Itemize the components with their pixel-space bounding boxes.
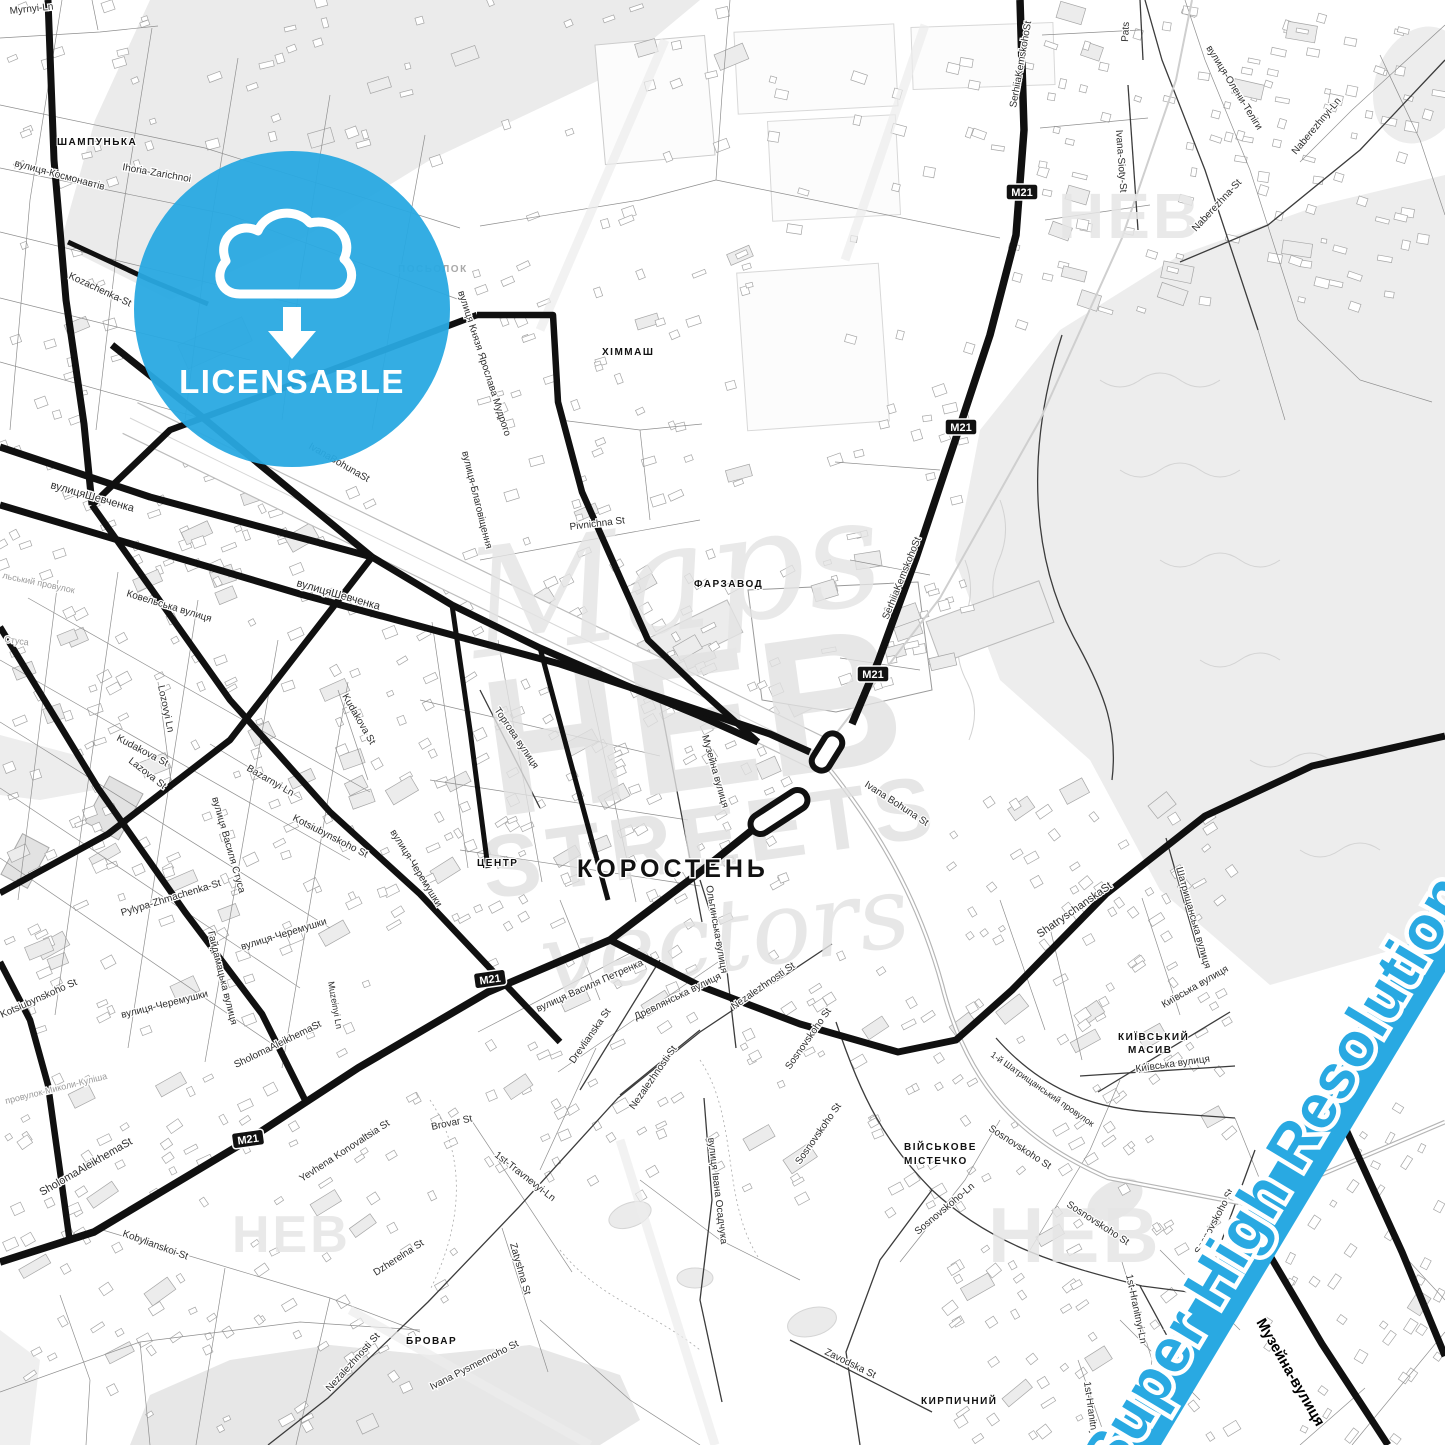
building bbox=[346, 486, 360, 499]
building bbox=[1199, 296, 1211, 305]
building bbox=[336, 717, 344, 726]
building bbox=[950, 495, 962, 505]
building bbox=[1390, 1433, 1401, 1444]
building bbox=[367, 1192, 380, 1205]
building bbox=[167, 852, 181, 862]
building bbox=[1056, 1, 1086, 24]
building bbox=[47, 1353, 57, 1361]
building bbox=[405, 63, 411, 70]
building bbox=[1029, 1431, 1038, 1440]
building bbox=[1053, 126, 1060, 133]
building bbox=[281, 850, 292, 859]
building bbox=[686, 315, 701, 327]
building bbox=[251, 748, 262, 760]
building bbox=[319, 1177, 333, 1188]
building bbox=[1224, 132, 1233, 142]
building bbox=[606, 1132, 616, 1142]
building bbox=[921, 1010, 935, 1022]
street-label: Dzherelna St bbox=[372, 1238, 427, 1279]
building bbox=[777, 1080, 785, 1088]
building bbox=[1070, 886, 1079, 895]
building bbox=[103, 318, 117, 331]
building bbox=[63, 606, 76, 618]
building bbox=[44, 1197, 55, 1208]
building bbox=[426, 843, 440, 853]
building bbox=[1334, 172, 1344, 182]
building bbox=[550, 1051, 562, 1059]
building bbox=[337, 1048, 348, 1057]
building bbox=[1016, 1166, 1025, 1175]
building bbox=[725, 464, 752, 482]
building bbox=[1017, 1290, 1026, 1300]
building bbox=[1306, 48, 1319, 58]
building bbox=[1328, 1274, 1342, 1290]
licensable-badge[interactable]: LICENSABLE bbox=[134, 151, 450, 467]
building bbox=[1420, 1258, 1431, 1270]
building bbox=[34, 396, 48, 409]
building bbox=[934, 1053, 945, 1064]
m21-shield-label: M21 bbox=[1011, 187, 1032, 199]
building bbox=[115, 1160, 125, 1170]
building bbox=[935, 1082, 944, 1091]
building bbox=[428, 1190, 437, 1200]
building bbox=[656, 1121, 667, 1129]
district-label: ШАМПУНЬКА bbox=[57, 137, 137, 148]
building bbox=[1401, 1156, 1413, 1170]
building bbox=[503, 921, 512, 931]
street-label: Sosnovskoho St bbox=[986, 1123, 1053, 1172]
district-label: БРОВАР bbox=[406, 1336, 457, 1347]
building bbox=[386, 1150, 398, 1160]
building bbox=[1060, 1304, 1071, 1314]
building bbox=[349, 1214, 376, 1238]
building bbox=[1039, 161, 1048, 168]
building bbox=[89, 685, 97, 693]
street-label: 1-й Шатрищанський провулок bbox=[989, 1049, 1096, 1128]
building bbox=[713, 138, 730, 152]
building bbox=[237, 1099, 253, 1112]
building bbox=[419, 738, 432, 749]
building bbox=[10, 1202, 24, 1216]
building bbox=[7, 54, 18, 62]
building bbox=[1337, 1315, 1347, 1325]
building bbox=[112, 1242, 123, 1253]
building bbox=[1417, 233, 1430, 244]
building bbox=[528, 1042, 538, 1051]
building bbox=[1216, 988, 1228, 998]
building bbox=[343, 1022, 355, 1034]
building bbox=[1042, 273, 1053, 281]
building bbox=[1076, 1300, 1089, 1311]
building bbox=[960, 1115, 970, 1126]
building bbox=[1222, 1126, 1237, 1140]
building bbox=[214, 655, 227, 666]
building bbox=[1146, 1136, 1154, 1143]
building bbox=[91, 1322, 105, 1333]
building bbox=[953, 1074, 964, 1084]
building bbox=[658, 1097, 669, 1106]
building bbox=[21, 1232, 36, 1246]
building bbox=[1127, 907, 1139, 919]
building bbox=[1360, 1131, 1368, 1139]
building bbox=[10, 334, 22, 345]
building bbox=[1209, 1002, 1218, 1011]
building bbox=[1108, 907, 1117, 917]
building bbox=[1061, 266, 1087, 282]
building bbox=[1079, 85, 1087, 93]
building bbox=[1053, 974, 1068, 986]
building bbox=[600, 219, 610, 229]
building bbox=[998, 925, 1005, 932]
m21-shield: M21 bbox=[473, 969, 507, 989]
building bbox=[983, 796, 995, 808]
watermark-corner-heb: HEB bbox=[1058, 180, 1202, 252]
building bbox=[740, 1043, 748, 1051]
building bbox=[1264, 80, 1273, 88]
building bbox=[1103, 1121, 1115, 1133]
building bbox=[73, 900, 88, 910]
building bbox=[588, 1079, 598, 1087]
building bbox=[504, 1074, 533, 1100]
building bbox=[968, 80, 980, 90]
building bbox=[911, 429, 923, 441]
building bbox=[101, 955, 117, 969]
building bbox=[964, 342, 975, 354]
building bbox=[942, 1300, 958, 1316]
building bbox=[107, 1384, 119, 1396]
map-preview: Maps HEB STREETS vectors HEBHEBHEB bbox=[0, 0, 1445, 1445]
building bbox=[242, 1013, 257, 1026]
building bbox=[1416, 1324, 1428, 1336]
building bbox=[99, 1282, 113, 1296]
building bbox=[1082, 934, 1094, 946]
building bbox=[25, 938, 54, 960]
building bbox=[646, 1165, 659, 1177]
building bbox=[171, 636, 179, 644]
building bbox=[9, 529, 20, 540]
building bbox=[742, 1184, 752, 1192]
building bbox=[769, 76, 777, 83]
building bbox=[968, 907, 977, 917]
building bbox=[101, 0, 115, 13]
building bbox=[355, 1154, 365, 1163]
building bbox=[1404, 1318, 1419, 1334]
building bbox=[1344, 1244, 1357, 1258]
building bbox=[20, 241, 28, 249]
building bbox=[1309, 1276, 1320, 1287]
building bbox=[423, 672, 438, 683]
building bbox=[380, 847, 389, 855]
building bbox=[901, 1019, 916, 1030]
building bbox=[485, 1039, 496, 1051]
building bbox=[1026, 1353, 1038, 1365]
building bbox=[1384, 291, 1394, 298]
building bbox=[1089, 812, 1099, 822]
building bbox=[818, 1051, 825, 1057]
building bbox=[220, 873, 229, 884]
building bbox=[1101, 112, 1111, 122]
building bbox=[1395, 66, 1405, 76]
building bbox=[434, 812, 444, 823]
building bbox=[1267, 69, 1278, 77]
building bbox=[363, 499, 376, 509]
building bbox=[146, 1345, 156, 1356]
building bbox=[1106, 983, 1114, 992]
building bbox=[445, 771, 471, 792]
building bbox=[1198, 72, 1210, 81]
building bbox=[972, 1433, 984, 1443]
building bbox=[862, 1016, 889, 1040]
building bbox=[1084, 1152, 1098, 1165]
building bbox=[1308, 1215, 1321, 1229]
district-label: КИРПИЧНИЙ bbox=[921, 1394, 997, 1407]
building bbox=[537, 1050, 551, 1060]
building bbox=[637, 1127, 647, 1135]
building bbox=[274, 1196, 283, 1204]
street-label: льський провулок bbox=[2, 570, 76, 595]
building bbox=[31, 1347, 42, 1356]
map-canvas: Maps HEB STREETS vectors HEBHEBHEB bbox=[0, 0, 1445, 1445]
building bbox=[592, 448, 603, 457]
building bbox=[434, 1279, 448, 1291]
building bbox=[1365, 111, 1373, 119]
building bbox=[1188, 1400, 1199, 1412]
building bbox=[1149, 1074, 1160, 1085]
building bbox=[1060, 1363, 1068, 1371]
m21-shield: M21 bbox=[857, 666, 889, 682]
building bbox=[1010, 849, 1023, 860]
building bbox=[118, 713, 129, 721]
building bbox=[1118, 840, 1129, 850]
building bbox=[1041, 1397, 1056, 1408]
building bbox=[199, 1197, 208, 1207]
building bbox=[218, 904, 240, 922]
m21-shield-label: M21 bbox=[950, 422, 971, 434]
building bbox=[1418, 1144, 1426, 1154]
building bbox=[960, 57, 974, 67]
building bbox=[1053, 1123, 1069, 1136]
building bbox=[441, 1296, 449, 1303]
building bbox=[986, 882, 996, 892]
building bbox=[115, 632, 127, 643]
building bbox=[1371, 1161, 1381, 1170]
building bbox=[950, 831, 958, 839]
building bbox=[906, 997, 918, 1009]
building bbox=[254, 1263, 269, 1277]
building bbox=[475, 284, 488, 295]
building bbox=[1321, 238, 1327, 243]
building bbox=[1317, 13, 1327, 23]
building bbox=[1102, 1135, 1116, 1147]
street-label: Yevhena Konovaltsia St bbox=[298, 1118, 392, 1185]
building bbox=[529, 455, 545, 466]
building bbox=[87, 1181, 119, 1208]
building bbox=[1347, 1180, 1359, 1193]
building bbox=[94, 737, 107, 746]
building bbox=[743, 1125, 775, 1151]
building bbox=[20, 129, 31, 138]
building bbox=[522, 334, 536, 343]
building bbox=[160, 1138, 172, 1150]
m21-shield: M21 bbox=[231, 1129, 265, 1149]
building bbox=[167, 1119, 183, 1134]
building bbox=[0, 539, 8, 550]
building bbox=[1072, 172, 1087, 180]
building bbox=[504, 489, 519, 502]
building bbox=[97, 999, 108, 1007]
building bbox=[1313, 176, 1323, 184]
building bbox=[222, 1326, 234, 1338]
building bbox=[610, 1039, 625, 1049]
building bbox=[1011, 1309, 1020, 1319]
building bbox=[197, 681, 205, 691]
building bbox=[932, 384, 947, 397]
district-label: ЦЕНТР bbox=[477, 858, 518, 869]
trails bbox=[430, 1060, 760, 1350]
building bbox=[202, 812, 212, 821]
building bbox=[1272, 139, 1281, 148]
building bbox=[692, 269, 706, 278]
building bbox=[1351, 133, 1357, 139]
building bbox=[1211, 110, 1221, 119]
building bbox=[1042, 189, 1052, 196]
building bbox=[159, 915, 175, 926]
building bbox=[781, 1001, 797, 1016]
building bbox=[258, 504, 266, 514]
building bbox=[136, 1333, 152, 1348]
building bbox=[947, 862, 957, 871]
building bbox=[1318, 1386, 1328, 1396]
building bbox=[593, 287, 602, 298]
building bbox=[982, 1173, 991, 1182]
building bbox=[1015, 320, 1027, 331]
building bbox=[1186, 142, 1194, 150]
building bbox=[1030, 875, 1043, 888]
building bbox=[234, 525, 242, 532]
building bbox=[1346, 85, 1358, 97]
building bbox=[1433, 1288, 1445, 1302]
building bbox=[1078, 876, 1093, 890]
building bbox=[993, 935, 1004, 945]
building bbox=[1047, 93, 1055, 101]
building bbox=[684, 455, 693, 463]
building bbox=[516, 261, 530, 271]
building bbox=[1257, 171, 1269, 182]
building bbox=[459, 801, 470, 812]
building bbox=[657, 1020, 672, 1033]
building bbox=[987, 1413, 1000, 1426]
building bbox=[1434, 1200, 1445, 1212]
building bbox=[1057, 1034, 1068, 1045]
street-label: Sosnovskoho St bbox=[793, 1101, 844, 1167]
building bbox=[21, 1115, 30, 1123]
building bbox=[558, 1129, 572, 1141]
building bbox=[1048, 829, 1060, 841]
building bbox=[4, 936, 15, 944]
building bbox=[636, 269, 646, 280]
street-label: Kozachenka-St bbox=[67, 271, 133, 310]
building bbox=[362, 980, 370, 987]
building bbox=[36, 967, 52, 980]
building bbox=[58, 1315, 69, 1327]
building bbox=[1258, 185, 1269, 197]
building bbox=[1017, 1036, 1025, 1044]
building bbox=[1186, 1042, 1194, 1050]
building bbox=[289, 562, 304, 575]
building bbox=[289, 1140, 298, 1147]
district-label: ХІММАШ bbox=[602, 347, 654, 358]
m21-shield: M21 bbox=[945, 419, 977, 435]
building bbox=[330, 664, 342, 676]
building bbox=[854, 449, 864, 457]
building bbox=[53, 548, 66, 559]
building bbox=[1175, 1243, 1190, 1256]
building bbox=[926, 472, 936, 480]
building bbox=[1070, 862, 1081, 871]
district-label: МАСИВ bbox=[1128, 1045, 1172, 1056]
building bbox=[972, 128, 987, 140]
street-label: Nezalezhnosti St bbox=[627, 1044, 679, 1112]
building bbox=[219, 1114, 228, 1125]
building bbox=[12, 715, 27, 726]
district-label: МІСТЕЧКО bbox=[904, 1156, 968, 1167]
m21-shield: M21 bbox=[1006, 184, 1038, 200]
building bbox=[1344, 37, 1357, 46]
building bbox=[954, 1415, 968, 1429]
building bbox=[1167, 962, 1178, 971]
building bbox=[1037, 1376, 1049, 1388]
building bbox=[635, 407, 644, 415]
building bbox=[239, 1115, 250, 1125]
building bbox=[671, 40, 681, 50]
building bbox=[1065, 138, 1074, 145]
building bbox=[97, 1012, 111, 1023]
street-label: Muzeinyi Ln bbox=[326, 981, 344, 1030]
building bbox=[169, 1167, 177, 1175]
building bbox=[1008, 796, 1035, 821]
building bbox=[809, 983, 822, 993]
street-label: Lozovyi Ln bbox=[155, 684, 176, 733]
building bbox=[1002, 1379, 1032, 1407]
watermark-corner-heb: HEB bbox=[232, 1206, 351, 1264]
building bbox=[207, 1313, 217, 1322]
building bbox=[923, 166, 935, 177]
street-label: Kudakova St bbox=[339, 692, 377, 747]
building bbox=[656, 1129, 667, 1140]
building bbox=[885, 1207, 896, 1218]
building bbox=[115, 1328, 124, 1336]
building bbox=[1069, 1137, 1085, 1150]
building bbox=[988, 1356, 1000, 1367]
building bbox=[1161, 931, 1173, 942]
building bbox=[1396, 152, 1407, 164]
building bbox=[1114, 897, 1125, 908]
building bbox=[75, 1186, 88, 1198]
building bbox=[184, 1144, 198, 1154]
street-label: Zatyshna St bbox=[507, 1242, 532, 1297]
building bbox=[155, 1072, 186, 1097]
building bbox=[140, 1025, 152, 1035]
building bbox=[1271, 47, 1287, 57]
building bbox=[242, 530, 250, 541]
building bbox=[929, 653, 957, 671]
building bbox=[336, 1295, 350, 1309]
building bbox=[1085, 1346, 1113, 1371]
building bbox=[668, 421, 676, 430]
building bbox=[541, 1134, 551, 1142]
building bbox=[1134, 96, 1142, 103]
building bbox=[1277, 118, 1286, 129]
